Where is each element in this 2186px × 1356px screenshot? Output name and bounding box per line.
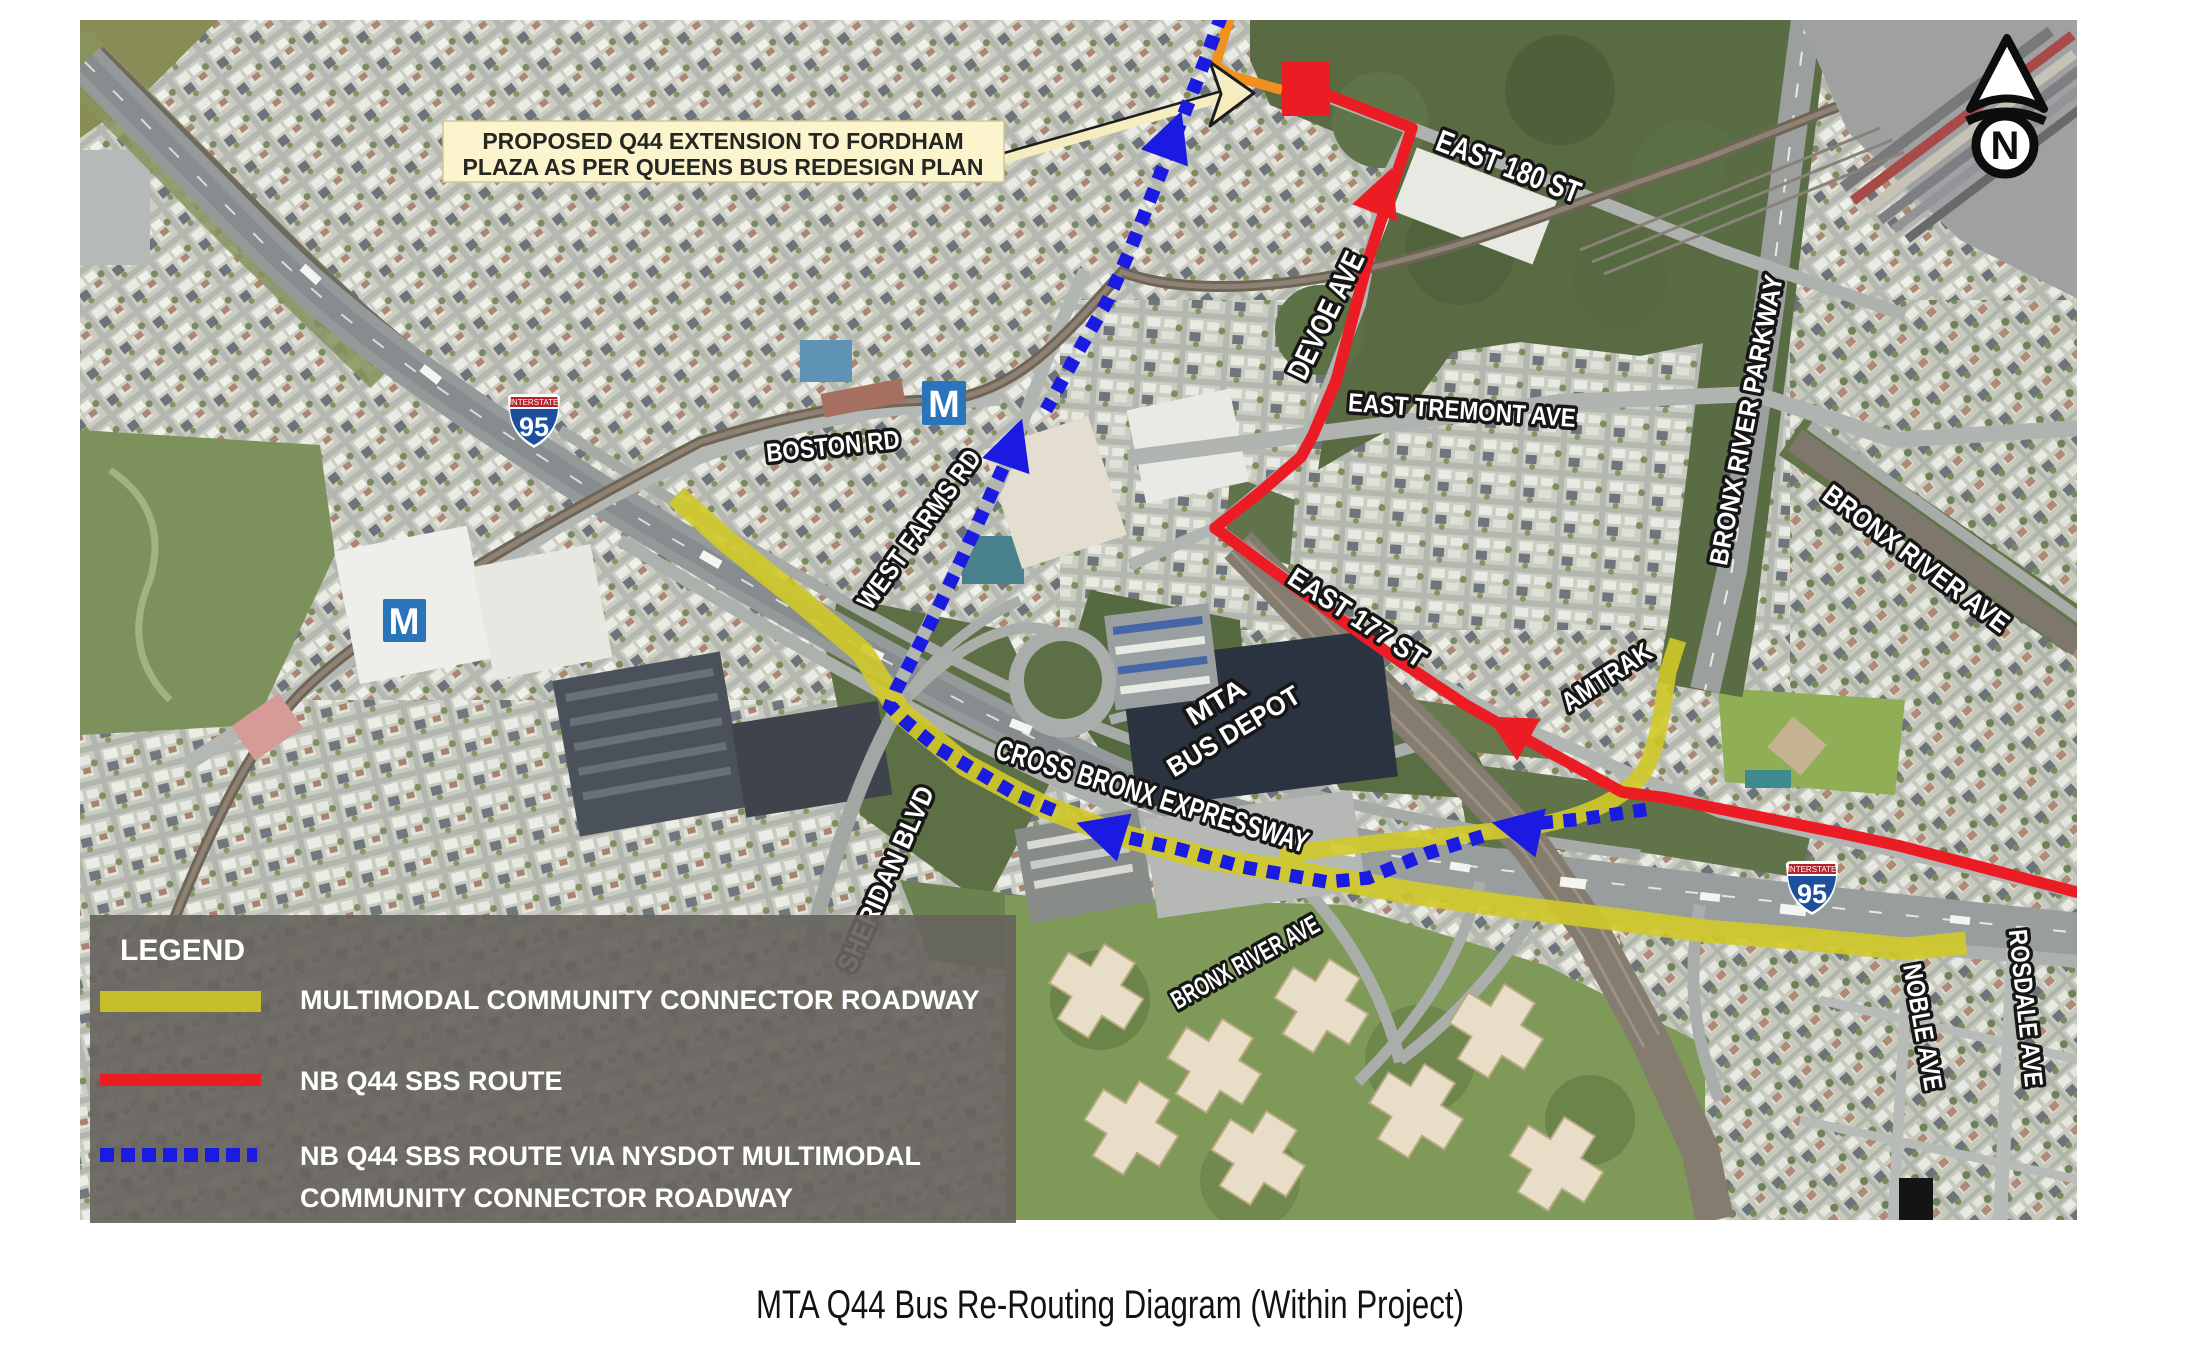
- svg-text:LEGEND: LEGEND: [120, 934, 245, 967]
- svg-text:MULTIMODAL COMMUNITY CONNECTOR: MULTIMODAL COMMUNITY CONNECTOR ROADWAY: [300, 985, 980, 1015]
- svg-text:NB Q44 SBS ROUTE VIA NYSDOT MU: NB Q44 SBS ROUTE VIA NYSDOT MULTIMODAL: [300, 1141, 921, 1171]
- svg-text:95: 95: [519, 412, 549, 442]
- svg-text:MTA Q44 Bus Re-Routing Diagram: MTA Q44 Bus Re-Routing Diagram (Within P…: [756, 1283, 1464, 1327]
- svg-text:NB Q44 SBS ROUTE: NB Q44 SBS ROUTE: [300, 1066, 563, 1096]
- svg-text:COMMUNITY CONNECTOR ROADWAY: COMMUNITY CONNECTOR ROADWAY: [300, 1183, 793, 1213]
- svg-text:M: M: [928, 384, 960, 426]
- svg-text:PLAZA AS PER QUEENS BUS REDESI: PLAZA AS PER QUEENS BUS REDESIGN PLAN: [463, 154, 984, 180]
- svg-text:N: N: [1991, 124, 2020, 168]
- svg-text:95: 95: [1797, 879, 1827, 909]
- svg-text:M: M: [389, 601, 420, 642]
- svg-text:PROPOSED Q44 EXTENSION TO FORD: PROPOSED Q44 EXTENSION TO FORDHAM: [482, 128, 963, 154]
- svg-text:INTERSTATE: INTERSTATE: [1788, 865, 1837, 874]
- svg-text:INTERSTATE: INTERSTATE: [510, 398, 559, 407]
